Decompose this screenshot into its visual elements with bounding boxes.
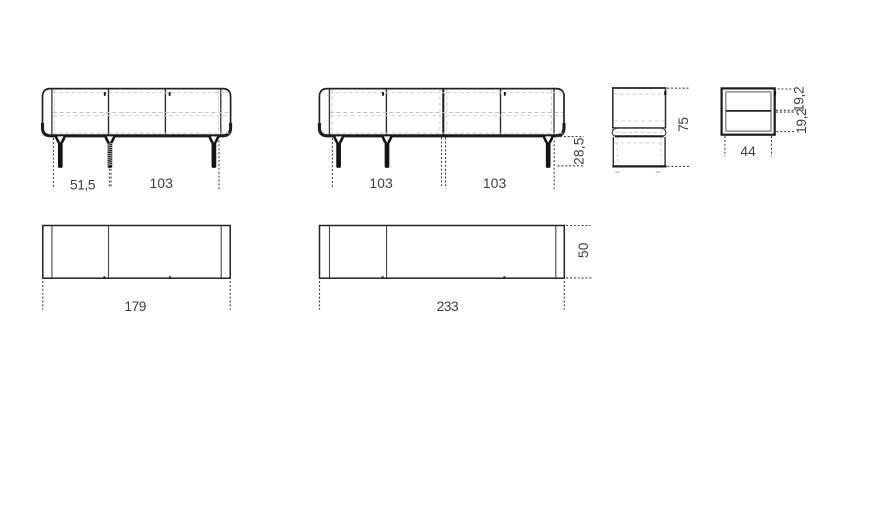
svg-text:28,5: 28,5 xyxy=(572,137,587,165)
svg-text:75: 75 xyxy=(676,117,691,132)
svg-text:233: 233 xyxy=(437,299,459,314)
svg-text:19,2: 19,2 xyxy=(794,109,809,134)
svg-text:179: 179 xyxy=(124,299,146,314)
svg-text:103: 103 xyxy=(149,176,173,191)
svg-text:44: 44 xyxy=(740,144,756,159)
svg-text:19,2: 19,2 xyxy=(792,87,807,112)
svg-text:51,5: 51,5 xyxy=(70,177,96,192)
svg-text:50: 50 xyxy=(576,242,591,258)
svg-text:103: 103 xyxy=(483,176,507,191)
svg-text:103: 103 xyxy=(369,176,393,191)
